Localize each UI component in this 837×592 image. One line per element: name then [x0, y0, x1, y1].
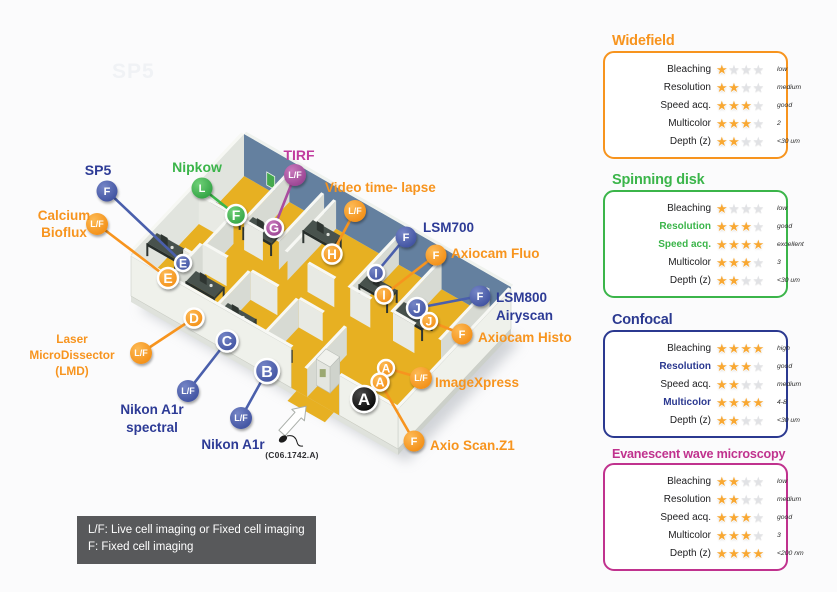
rating-value: 3 — [777, 532, 781, 539]
rating-row: Depth (z)★★★★<30 um — [605, 272, 786, 290]
star-filled-icon: ★ — [740, 510, 752, 525]
star-filled-icon: ★ — [716, 510, 728, 525]
rating-label: Resolution — [605, 494, 711, 505]
equipment-label: Axio Scan.Z1 — [430, 438, 515, 453]
badge-L: L — [192, 178, 213, 199]
svg-text:J: J — [426, 314, 433, 328]
star-empty-icon: ★ — [740, 492, 752, 507]
rating-row: Resolution★★★★medium — [605, 490, 786, 508]
panel-widefield: WidefieldBleaching★★★★lowResolution★★★★m… — [603, 33, 788, 159]
star-filled-icon: ★ — [728, 134, 740, 149]
rating-value: <200 nm — [777, 550, 804, 557]
star-rating: ★★★★ — [716, 274, 777, 287]
star-filled-icon: ★ — [716, 134, 728, 149]
star-empty-icon: ★ — [752, 377, 764, 392]
svg-text:F: F — [477, 291, 484, 303]
star-filled-icon: ★ — [728, 510, 740, 525]
rating-label: Bleaching — [605, 476, 711, 487]
badge-F: F — [396, 227, 417, 248]
svg-text:C: C — [222, 334, 233, 350]
star-filled-icon: ★ — [716, 80, 728, 95]
star-empty-icon: ★ — [752, 201, 764, 216]
star-empty-icon: ★ — [752, 359, 764, 374]
star-filled-icon: ★ — [716, 359, 728, 374]
panel-box-spinning-disk: Bleaching★★★★lowResolution★★★★goodSpeed … — [603, 190, 788, 298]
star-filled-icon: ★ — [728, 341, 740, 356]
badge-F: F — [404, 431, 425, 452]
rating-value: <30 um — [777, 138, 800, 145]
rating-label: Bleaching — [605, 203, 711, 214]
star-filled-icon: ★ — [716, 62, 728, 77]
rating-label: Depth (z) — [605, 415, 711, 426]
svg-text:L/F: L/F — [134, 348, 148, 358]
star-filled-icon: ★ — [728, 116, 740, 131]
panel-box-widefield: Bleaching★★★★lowResolution★★★★mediumSpee… — [603, 51, 788, 159]
room-marker-F: F — [226, 205, 246, 225]
star-filled-icon: ★ — [716, 492, 728, 507]
rating-label: Resolution — [605, 361, 711, 372]
star-filled-icon: ★ — [716, 377, 728, 392]
rating-label: Multicolor — [605, 257, 711, 268]
star-filled-icon: ★ — [728, 273, 740, 288]
panel-box-confocal: Bleaching★★★★highResolution★★★★goodSpeed… — [603, 330, 788, 438]
legend-line-fixed: F: Fixed cell imaging — [88, 539, 305, 556]
rating-value: good — [777, 223, 792, 230]
equipment-label: CalciumBioflux — [38, 208, 91, 240]
star-filled-icon: ★ — [716, 201, 728, 216]
rating-row: Multicolor★★★★3 — [605, 527, 786, 545]
svg-text:D: D — [189, 311, 199, 326]
star-filled-icon: ★ — [728, 492, 740, 507]
star-empty-icon: ★ — [740, 273, 752, 288]
star-filled-icon: ★ — [740, 98, 752, 113]
rating-value: high — [777, 345, 790, 352]
badge-L-F: L/F — [177, 380, 199, 402]
equipment-label: LSM700 — [423, 220, 474, 235]
rating-label: Speed acq. — [605, 239, 711, 250]
rating-label: Bleaching — [605, 64, 711, 75]
star-rating: ★★★★ — [716, 529, 777, 542]
room-marker-I: I — [368, 265, 384, 281]
svg-text:I: I — [382, 289, 385, 303]
svg-text:L/F: L/F — [234, 413, 248, 423]
star-filled-icon: ★ — [740, 359, 752, 374]
star-empty-icon: ★ — [740, 377, 752, 392]
equipment-label: TIRF — [283, 147, 315, 163]
svg-text:A: A — [358, 390, 370, 409]
star-rating: ★★★★ — [716, 475, 777, 488]
rating-label: Bleaching — [605, 343, 711, 354]
svg-text:L/F: L/F — [348, 206, 362, 216]
rating-value: low — [777, 478, 787, 485]
star-filled-icon: ★ — [716, 413, 728, 428]
rating-value: medium — [777, 381, 801, 388]
room-marker-I: I — [376, 287, 393, 304]
legend-box: L/F: Live cell imaging or Fixed cell ima… — [77, 516, 316, 564]
star-filled-icon: ★ — [716, 546, 728, 561]
star-filled-icon: ★ — [728, 237, 740, 252]
star-filled-icon: ★ — [740, 237, 752, 252]
rating-value: good — [777, 363, 792, 370]
star-filled-icon: ★ — [716, 341, 728, 356]
star-rating: ★★★★ — [716, 63, 777, 76]
star-empty-icon: ★ — [728, 62, 740, 77]
svg-text:G: G — [269, 221, 279, 236]
svg-text:L: L — [199, 183, 206, 195]
rating-value: 2 — [777, 120, 781, 127]
star-filled-icon: ★ — [728, 255, 740, 270]
svg-text:E: E — [163, 270, 172, 286]
star-rating: ★★★★ — [716, 342, 777, 355]
star-rating: ★★★★ — [716, 414, 777, 427]
panel-title-widefield: Widefield — [612, 33, 788, 49]
star-empty-icon: ★ — [752, 80, 764, 95]
star-empty-icon: ★ — [740, 80, 752, 95]
rating-row: Bleaching★★★★low — [605, 472, 786, 490]
star-empty-icon: ★ — [740, 201, 752, 216]
svg-text:L/F: L/F — [414, 373, 428, 383]
room-marker-B: B — [255, 359, 279, 383]
rating-value: good — [777, 514, 792, 521]
star-empty-icon: ★ — [740, 62, 752, 77]
star-filled-icon: ★ — [728, 359, 740, 374]
rating-value: good — [777, 102, 792, 109]
star-empty-icon: ★ — [752, 98, 764, 113]
star-filled-icon: ★ — [740, 395, 752, 410]
svg-text:J: J — [413, 300, 421, 316]
legend-line-live-fixed: L/F: Live cell imaging or Fixed cell ima… — [88, 522, 305, 539]
star-rating: ★★★★ — [716, 135, 777, 148]
star-rating: ★★★★ — [716, 511, 777, 524]
equipment-label: Nipkow — [172, 159, 222, 175]
star-empty-icon: ★ — [752, 219, 764, 234]
rating-row: Bleaching★★★★high — [605, 339, 786, 357]
rating-label: Depth (z) — [605, 136, 711, 147]
rating-label: Depth (z) — [605, 275, 711, 286]
rating-row: Depth (z)★★★★<30 um — [605, 412, 786, 430]
rating-row: Speed acq.★★★★excellent — [605, 235, 786, 253]
star-empty-icon: ★ — [752, 474, 764, 489]
svg-text:F: F — [411, 436, 418, 448]
infographic-canvas: SP5 EEFGHIIJJDCBAAAFL/FLL/FL/FFFFFL/FFL/… — [0, 0, 837, 592]
star-filled-icon: ★ — [728, 546, 740, 561]
badge-L-F: L/F — [130, 342, 152, 364]
star-filled-icon: ★ — [752, 341, 764, 356]
panel-title-evanescent: Evanescent wave microscopy — [612, 447, 788, 461]
star-filled-icon: ★ — [740, 255, 752, 270]
rating-row: Multicolor★★★★3 — [605, 254, 786, 272]
star-filled-icon: ★ — [740, 546, 752, 561]
rating-row: Multicolor★★★★4-8 — [605, 394, 786, 412]
svg-text:H: H — [327, 247, 337, 262]
panel-confocal: ConfocalBleaching★★★★highResolution★★★★g… — [603, 312, 788, 438]
star-empty-icon: ★ — [752, 116, 764, 131]
rating-value: low — [777, 66, 787, 73]
star-filled-icon: ★ — [752, 395, 764, 410]
room-marker-J: J — [421, 313, 437, 329]
star-filled-icon: ★ — [728, 413, 740, 428]
svg-text:F: F — [104, 186, 111, 198]
rating-value: <30 um — [777, 417, 800, 424]
star-filled-icon: ★ — [728, 474, 740, 489]
star-empty-icon: ★ — [752, 62, 764, 77]
svg-text:F: F — [403, 232, 410, 244]
panel-evanescent: Evanescent wave microscopyBleaching★★★★l… — [603, 447, 788, 571]
badge-L-F: L/F — [410, 367, 432, 389]
panel-spinning-disk: Spinning diskBleaching★★★★lowResolution★… — [603, 172, 788, 298]
star-rating: ★★★★ — [716, 360, 777, 373]
badge-F: F — [97, 181, 118, 202]
equipment-label: LaserMicroDissector(LMD) — [29, 332, 115, 378]
rating-label: Depth (z) — [605, 548, 711, 559]
rating-row: Depth (z)★★★★<200 nm — [605, 545, 786, 563]
leader-line — [97, 224, 168, 278]
rating-value: 3 — [777, 259, 781, 266]
equipment-label: SP5 — [85, 162, 112, 178]
rating-value: 4-8 — [777, 399, 787, 406]
rating-value: medium — [777, 496, 801, 503]
star-empty-icon: ★ — [752, 413, 764, 428]
star-rating: ★★★★ — [716, 378, 777, 391]
panel-box-evanescent: Bleaching★★★★lowResolution★★★★mediumSpee… — [603, 463, 788, 571]
star-empty-icon: ★ — [740, 474, 752, 489]
star-filled-icon: ★ — [716, 395, 728, 410]
room-marker-D: D — [185, 309, 204, 328]
star-filled-icon: ★ — [728, 377, 740, 392]
star-rating: ★★★★ — [716, 238, 777, 251]
star-empty-icon: ★ — [752, 510, 764, 525]
star-empty-icon: ★ — [752, 492, 764, 507]
star-filled-icon: ★ — [728, 528, 740, 543]
star-empty-icon: ★ — [752, 255, 764, 270]
rating-value: excellent — [777, 241, 804, 248]
equipment-label: LSM800Airyscan — [496, 290, 553, 323]
badge-F: F — [452, 324, 473, 345]
rating-label: Speed acq. — [605, 379, 711, 390]
star-filled-icon: ★ — [740, 219, 752, 234]
star-filled-icon: ★ — [740, 528, 752, 543]
star-filled-icon: ★ — [716, 98, 728, 113]
badge-F: F — [470, 286, 491, 307]
star-empty-icon: ★ — [740, 134, 752, 149]
rating-value: low — [777, 205, 787, 212]
star-filled-icon: ★ — [716, 273, 728, 288]
svg-text:F: F — [459, 329, 466, 341]
star-rating: ★★★★ — [716, 256, 777, 269]
rating-row: Resolution★★★★good — [605, 357, 786, 375]
star-rating: ★★★★ — [716, 99, 777, 112]
rating-label: Multicolor — [605, 530, 711, 541]
svg-text:L/F: L/F — [90, 219, 104, 229]
rating-row: Bleaching★★★★low — [605, 60, 786, 78]
room-marker-E: E — [175, 255, 191, 271]
rating-label: Multicolor — [605, 397, 711, 408]
room-marker-C: C — [217, 331, 238, 352]
badge-L-F: L/F — [284, 164, 306, 186]
rating-row: Speed acq.★★★★good — [605, 96, 786, 114]
star-filled-icon: ★ — [728, 219, 740, 234]
star-filled-icon: ★ — [728, 395, 740, 410]
star-filled-icon: ★ — [716, 219, 728, 234]
rating-row: Resolution★★★★good — [605, 217, 786, 235]
svg-text:F: F — [232, 207, 241, 223]
star-filled-icon: ★ — [752, 546, 764, 561]
equipment-label: ImageXpress — [435, 375, 519, 390]
rating-label: Multicolor — [605, 118, 711, 129]
star-filled-icon: ★ — [752, 237, 764, 252]
rating-label: Resolution — [605, 82, 711, 93]
room-code-label: (C06.1742.A) — [250, 450, 334, 460]
star-empty-icon: ★ — [752, 528, 764, 543]
rating-value: <30 um — [777, 277, 800, 284]
badge-L-F: L/F — [344, 200, 366, 222]
equipment-label: Video time- lapse — [325, 180, 436, 195]
star-filled-icon: ★ — [740, 341, 752, 356]
panel-title-spinning-disk: Spinning disk — [612, 172, 788, 188]
svg-text:L/F: L/F — [288, 170, 302, 180]
rating-row: Depth (z)★★★★<30 um — [605, 133, 786, 151]
badge-L-F: L/F — [230, 407, 252, 429]
rating-label: Speed acq. — [605, 100, 711, 111]
star-rating: ★★★★ — [716, 547, 777, 560]
star-filled-icon: ★ — [716, 237, 728, 252]
star-rating: ★★★★ — [716, 493, 777, 506]
svg-text:L/F: L/F — [181, 386, 195, 396]
svg-text:A: A — [375, 376, 384, 390]
star-filled-icon: ★ — [728, 98, 740, 113]
star-rating: ★★★★ — [716, 202, 777, 215]
leader-line — [107, 191, 183, 263]
equipment-label: Axiocam Histo — [478, 330, 572, 345]
rating-value: medium — [777, 84, 801, 91]
star-filled-icon: ★ — [716, 528, 728, 543]
star-filled-icon: ★ — [716, 474, 728, 489]
equipment-label: Nikon A1rspectral — [120, 402, 184, 435]
room-marker-A: A — [372, 374, 389, 391]
room-marker-G: G — [265, 219, 283, 237]
star-empty-icon: ★ — [752, 134, 764, 149]
star-rating: ★★★★ — [716, 81, 777, 94]
star-rating: ★★★★ — [716, 117, 777, 130]
rating-label: Speed acq. — [605, 512, 711, 523]
rating-row: Multicolor★★★★2 — [605, 115, 786, 133]
star-empty-icon: ★ — [752, 273, 764, 288]
room-marker-A: A — [351, 386, 377, 412]
svg-text:F: F — [433, 250, 440, 262]
rating-row: Bleaching★★★★low — [605, 199, 786, 217]
svg-text:E: E — [179, 256, 187, 270]
svg-text:I: I — [374, 266, 377, 280]
star-filled-icon: ★ — [716, 255, 728, 270]
room-marker-H: H — [323, 245, 342, 264]
svg-text:B: B — [261, 364, 273, 381]
star-filled-icon: ★ — [740, 116, 752, 131]
equipment-label: Axiocam Fluo — [451, 246, 540, 261]
rating-row: Resolution★★★★medium — [605, 78, 786, 96]
room-marker-E: E — [158, 268, 178, 288]
panel-title-confocal: Confocal — [612, 312, 788, 328]
rating-row: Speed acq.★★★★good — [605, 508, 786, 526]
badge-F: F — [426, 245, 447, 266]
rating-label: Resolution — [605, 221, 711, 232]
star-filled-icon: ★ — [716, 116, 728, 131]
rating-row: Speed acq.★★★★medium — [605, 375, 786, 393]
star-empty-icon: ★ — [740, 413, 752, 428]
star-filled-icon: ★ — [728, 80, 740, 95]
star-rating: ★★★★ — [716, 220, 777, 233]
star-rating: ★★★★ — [716, 396, 777, 409]
star-empty-icon: ★ — [728, 201, 740, 216]
